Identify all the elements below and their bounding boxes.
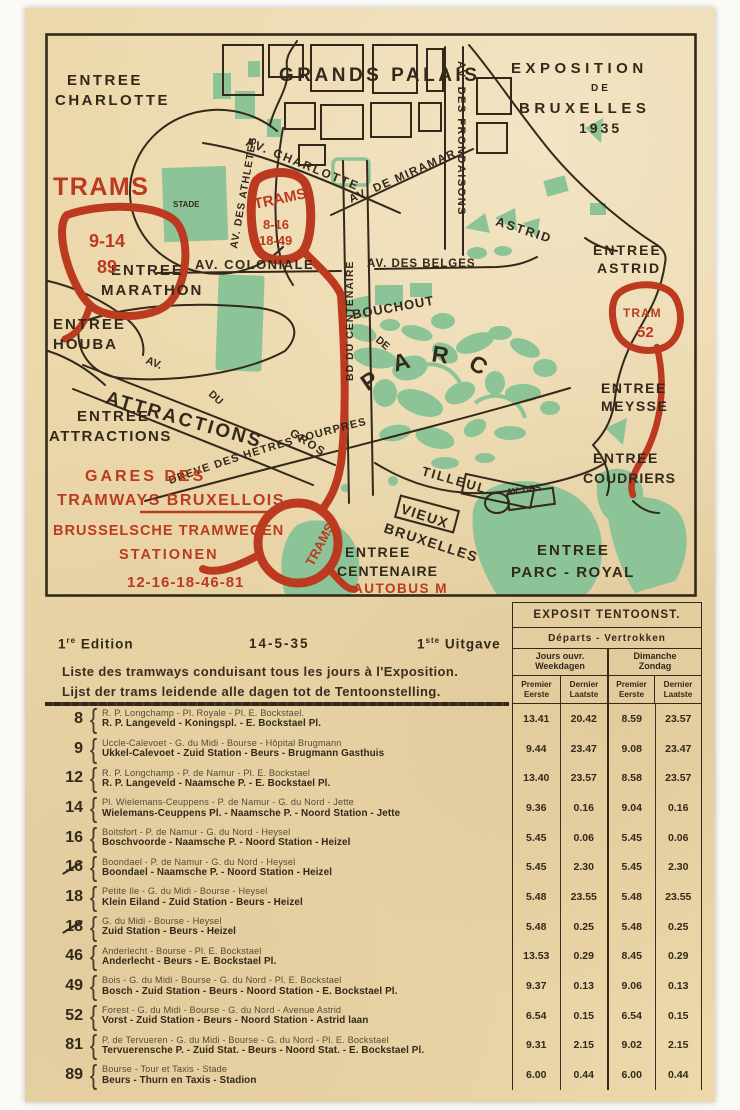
col-sunday: Dimanche Zondag [607,649,701,675]
line-number: 8 [73,710,84,728]
route-brace-icon: { [87,792,100,825]
label-entree-attractions-2: ATTRACTIONS [49,428,172,445]
line-number: 9 [73,740,84,758]
route-brace-icon: { [87,1059,100,1092]
time-weekday-first: 5.45 [512,852,560,882]
route-nl: Klein Eiland - Zuid Station - Beurs - He… [102,897,512,908]
route-nl: Wielemans-Ceuppens Pl. - Naamsche P. - N… [102,808,512,819]
route-brace-icon: { [87,970,100,1003]
route-cell: G. du Midi - Bourse - Heysel Zuid Statio… [100,916,512,937]
route-nl: Ukkel-Calevoet - Zuid Station - Beurs - … [102,748,512,759]
time-weekday-first: 5.45 [512,823,560,853]
time-sunday-last: 23.57 [655,763,703,793]
leaflet-card: ENTREE CHARLOTTE GRANDS PALAIS EXPOSITIO… [25,8,715,1102]
label-entree-astrid: ENTREE [593,242,662,258]
label-entree-coudriers: ENTREE [593,450,659,466]
label-gares-nl-1: BRUSSELSCHE TRAMWEGEN [53,523,284,539]
col-wd-first: Premier Eerste [513,676,560,703]
route-brace-icon: { [87,703,100,736]
route-fr: Boitsfort - P. de Namur - G. du Nord - H… [102,827,512,837]
timetable-row: 52 { Forest - G. du Midi - Bourse - G. d… [45,1001,702,1031]
time-weekday-last: 23.55 [560,882,608,912]
time-weekday-last: 2.30 [560,852,608,882]
time-weekday-last: 0.13 [560,971,608,1001]
time-weekday-first: 5.48 [512,882,560,912]
wd-last-nl: Laatste [570,690,599,699]
line-number-cell: 46 [45,947,87,965]
route-cell: Uccle-Calevoet - G. du Midi - Bourse - H… [100,738,512,759]
label-trams-mid-lines-2: 18-49 [259,233,292,248]
route-brace-icon: { [87,999,100,1032]
label-entree-charlotte: ENTREE [67,72,143,89]
route-cell: R. P. Longchamp - Pl. Royale - Pl. E. Bo… [100,708,512,729]
line-number-cell: 14 [45,799,87,817]
intro-fr: Liste des tramways conduisant tous les j… [62,664,458,679]
route-fr: Bois - G. du Midi - Bourse - G. du Nord … [102,975,512,985]
route-brace-icon: { [87,1029,100,1062]
su-last-nl: Laatste [664,690,693,699]
time-sunday-last: 2.15 [655,1031,703,1061]
route-brace-icon: { [87,910,100,943]
route-cell: Bois - G. du Midi - Bourse - G. du Nord … [100,975,512,996]
time-sunday-last: 0.06 [655,823,703,853]
edition-fr: 1re Edition [58,636,134,652]
line-number-cell: 12 [45,769,87,787]
time-weekday-first: 9.37 [512,971,560,1001]
route-brace-icon: { [87,732,100,765]
label-trams-left-lines: 9-14 [89,231,125,251]
edition-fr-word: Edition [81,637,134,652]
schedule-title: EXPOSIT TENTOONST. [513,603,701,628]
timetable-row: 9 { Uccle-Calevoet - G. du Midi - Bourse… [45,734,702,764]
edition-nl-num: 1 [417,637,426,652]
route-nl: Zuid Station - Beurs - Heizel [102,926,512,937]
col-weekdays-nl: Weekdagen [535,662,585,672]
route-brace-icon: { [87,762,100,795]
route-brace-icon: { [87,851,100,884]
line-number: 18 [64,888,84,906]
time-weekday-first: 9.44 [512,734,560,764]
label-av-miramar: AV. DE MIRAMAR [347,148,458,206]
route-brace-icon: { [87,940,100,973]
route-cell: Petite Ile - G. du Midi - Bourse - Heyse… [100,886,512,907]
route-cell: Anderlecht - Bourse - Pl. E. Bockstael A… [100,946,512,967]
label-entree-marathon: ENTREE [111,262,184,279]
line-number: 18 [64,918,84,936]
time-sunday-first: 8.59 [607,704,655,734]
time-weekday-first: 13.53 [512,942,560,972]
time-sunday-last: 0.29 [655,942,703,972]
col-wd-last: Dernier Laatste [560,676,607,703]
route-nl: Vorst - Zuid Station - Beurs - Noord Sta… [102,1015,512,1026]
route-nl: Beurs - Thurn en Taxis - Stadion [102,1075,512,1086]
time-weekday-last: 0.16 [560,793,608,823]
edition-fr-sup: re [67,636,77,645]
label-entree-astrid-2: ASTRID [597,260,661,276]
timetable-row: 14 { Pl. Wielemans-Ceuppens - P. de Namu… [45,793,702,823]
label-gares-nl-2: STATIONEN [119,547,219,563]
label-entree-houba-2: HOUBA [53,336,118,353]
label-entree-coudriers-2: COUDRIERS [583,470,676,486]
label-gares-fr-1: GARES DES [85,468,206,485]
label-tram52: TRAM [623,306,662,320]
timetable-row: 18 { G. du Midi - Bourse - Heysel Zuid S… [45,912,702,942]
route-brace-icon: { [87,881,100,914]
time-weekday-last: 23.47 [560,734,608,764]
time-weekday-last: 20.42 [560,704,608,734]
time-weekday-last: 23.57 [560,763,608,793]
route-fr: G. du Midi - Bourse - Heysel [102,916,512,926]
line-number-cell: 89 [45,1066,87,1084]
time-sunday-last: 0.13 [655,971,703,1001]
edition-nl: 1ste Uitgave [417,636,501,652]
time-sunday-last: 0.44 [655,1060,703,1090]
wd-last-fr: Dernier [570,680,599,689]
route-fr: Bourse - Tour et Taxis - Stade [102,1064,512,1074]
label-trams-left: TRAMS [53,173,149,201]
line-number-cell: 16 [45,829,87,847]
time-weekday-first: 9.31 [512,1031,560,1061]
route-fr: R. P. Longchamp - Pl. Royale - Pl. E. Bo… [102,708,512,718]
route-fr: P. de Tervueren - G. du Midi - Bourse - … [102,1035,512,1045]
col-su-last: Dernier Laatste [654,676,701,703]
label-entree-attractions: ENTREE [77,408,150,425]
edition-nl-word: Uitgave [445,637,501,652]
time-weekday-last: 0.15 [560,1001,608,1031]
time-sunday-first: 5.48 [607,882,655,912]
time-sunday-first: 6.00 [607,1060,655,1090]
label-trams-mid-lines: 8-16 [263,217,289,232]
timetable-row: 81 { P. de Tervueren - G. du Midi - Bour… [45,1031,702,1061]
line-number-cell: 52 [45,1007,87,1025]
label-entree-meysse-2: MEYSSE [601,398,668,414]
timetable-row: 16 { Boondael - P. de Namur - G. du Nord… [45,852,702,882]
label-autobus: AUTOBUS M [353,581,448,596]
label-tram52-num: 52 [637,324,654,341]
label-bruxelles: BRUXELLES [519,100,650,117]
timetable-row: 49 { Bois - G. du Midi - Bourse - G. du … [45,971,702,1001]
schedule-firstlast-columns: Premier Eerste Dernier Laatste Premier E… [513,676,701,703]
timetable-row: 8 { R. P. Longchamp - Pl. Royale - Pl. E… [45,704,702,734]
route-fr: Forest - G. du Midi - Bourse - G. du Nor… [102,1005,512,1015]
label-entree-meysse: ENTREE [601,380,667,396]
map-canvas: ENTREE CHARLOTTE GRANDS PALAIS EXPOSITIO… [45,33,697,597]
route-fr: Petite Ile - G. du Midi - Bourse - Heyse… [102,886,512,896]
time-sunday-last: 23.57 [655,704,703,734]
label-exposition: EXPOSITION [511,60,648,77]
col-sunday-nl: Zondag [639,662,672,672]
route-cell: Forest - G. du Midi - Bourse - G. du Nor… [100,1005,512,1026]
label-entree-houba: ENTREE [53,316,126,333]
time-sunday-first: 5.45 [607,823,655,853]
edition-fr-num: 1 [58,637,67,652]
label-du-frag: DU [206,388,225,407]
su-first-fr: Premier [616,680,647,689]
time-sunday-last: 2.30 [655,852,703,882]
col-weekdays: Jours ouvr. Weekdagen [513,649,607,675]
time-sunday-first: 9.08 [607,734,655,764]
timetable-row: 89 { Bourse - Tour et Taxis - Stade Beur… [45,1060,702,1090]
label-entree-centenaire-2: CENTENAIRE [337,563,438,579]
time-weekday-first: 9.36 [512,793,560,823]
label-astrid-street: ASTRID [494,215,554,246]
line-number-cell: 9 [45,740,87,758]
route-cell: R. P. Longchamp - P. de Namur - Pl. E. B… [100,768,512,789]
time-sunday-first: 9.02 [607,1031,655,1061]
su-first-nl: Eerste [619,690,644,699]
col-su-first: Premier Eerste [607,676,654,703]
time-weekday-first: 13.41 [512,704,560,734]
route-cell: Boitsfort - P. de Namur - G. du Nord - H… [100,827,512,848]
label-stade: STADE [173,200,200,209]
line-number-cell: 16 [45,858,87,876]
route-cell: P. de Tervueren - G. du Midi - Bourse - … [100,1035,512,1056]
time-sunday-last: 0.16 [655,793,703,823]
schedule-day-columns: Jours ouvr. Weekdagen Dimanche Zondag [513,649,701,676]
label-gares-fr-2: TRAMWAYS BRUXELLOIS [57,492,285,509]
route-nl: Boschvoorde - Naamsche P. - Noord Statio… [102,837,512,848]
expo-map: ENTREE CHARLOTTE GRANDS PALAIS EXPOSITIO… [45,33,697,597]
edition-date: 14-5-35 [249,636,310,651]
line-number: 52 [64,1007,84,1025]
route-fr: Anderlecht - Bourse - Pl. E. Bockstael [102,946,512,956]
time-weekday-first: 13.40 [512,763,560,793]
line-number: 49 [64,977,84,995]
schedule-header-box: EXPOSIT TENTOONST. Départs - Vertrokken … [512,602,702,704]
intro-nl: Lijst der trams leidende alle dagen tot … [62,684,441,699]
route-nl: Anderlecht - Beurs - E. Bockstael Pl. [102,956,512,967]
route-cell: Bourse - Tour et Taxis - Stade Beurs - T… [100,1064,512,1085]
schedule-subtitle: Départs - Vertrokken [513,628,701,649]
route-nl: R. P. Langeveld - Naamsche P. - E. Bocks… [102,778,512,789]
time-weekday-first: 5.48 [512,912,560,942]
time-weekday-last: 0.06 [560,823,608,853]
line-number-cell: 49 [45,977,87,995]
time-sunday-first: 6.54 [607,1001,655,1031]
time-sunday-first: 9.06 [607,971,655,1001]
wd-first-nl: Eerste [524,690,549,699]
label-trams-left-lines-2: 89 [97,257,117,277]
timetable-row: 46 { Anderlecht - Bourse - Pl. E. Bockst… [45,942,702,972]
timetable-row: 12 { R. P. Longchamp - P. de Namur - Pl.… [45,763,702,793]
line-number-cell: 8 [45,710,87,728]
label-entree-marathon-2: MARATHON [101,282,203,299]
label-1935: 1935 [579,120,622,136]
route-nl: Boondael - Naamsche P. - Noord Station -… [102,867,512,878]
line-number: 12 [64,769,84,787]
time-sunday-first: 9.04 [607,793,655,823]
time-sunday-first: 8.45 [607,942,655,972]
line-number: 16 [64,858,84,876]
line-number: 46 [64,947,84,965]
route-fr: R. P. Longchamp - P. de Namur - Pl. E. B… [102,768,512,778]
label-gares-lines: 12-16-18-46-81 [127,574,244,591]
route-cell: Boondael - P. de Namur - G. du Nord - He… [100,857,512,878]
time-weekday-last: 0.25 [560,912,608,942]
label-trams-mid: TRAMS [252,185,308,213]
time-sunday-last: 23.47 [655,734,703,764]
route-nl: Bosch - Zuid Station - Beurs - Noord Sta… [102,986,512,997]
route-fr: Uccle-Calevoet - G. du Midi - Bourse - H… [102,738,512,748]
line-number: 81 [64,1036,84,1054]
line-number: 89 [64,1066,84,1084]
time-weekday-first: 6.54 [512,1001,560,1031]
route-brace-icon: { [87,821,100,854]
timetable-row: 18 { Petite Ile - G. du Midi - Bourse - … [45,882,702,912]
line-number-cell: 81 [45,1036,87,1054]
label-exposition-de: DE [591,83,611,94]
label-av-frag: AV. [144,355,164,372]
time-sunday-last: 23.55 [655,882,703,912]
route-fr: Boondael - P. de Namur - G. du Nord - He… [102,857,512,867]
su-last-fr: Dernier [664,680,693,689]
time-weekday-last: 0.29 [560,942,608,972]
time-sunday-first: 8.58 [607,763,655,793]
time-weekday-last: 2.15 [560,1031,608,1061]
line-number: 16 [64,829,84,847]
time-weekday-last: 0.44 [560,1060,608,1090]
time-sunday-last: 0.15 [655,1001,703,1031]
route-fr: Pl. Wielemans-Ceuppens - P. de Namur - G… [102,797,512,807]
label-av-des-belges: AV. DES BELGES [367,258,476,270]
label-grands-palais: GRANDS PALAIS [279,65,480,86]
time-sunday-first: 5.48 [607,912,655,942]
label-entree-parc-royal-2: PARC - ROYAL [511,564,635,581]
route-nl: Tervuerensche P. - Zuid Stat. - Beurs - … [102,1045,512,1056]
label-av-coloniale: AV. COLONIALE [195,257,314,272]
timetable-row: 16 { Boitsfort - P. de Namur - G. du Nor… [45,823,702,853]
label-av-frondaisons: AV. DES FRONDAISONS [455,61,467,216]
route-cell: Pl. Wielemans-Ceuppens - P. de Namur - G… [100,797,512,818]
edition-nl-sup: ste [426,636,441,645]
line-number-cell: 18 [45,918,87,936]
time-sunday-first: 5.45 [607,852,655,882]
wd-first-fr: Premier [521,680,552,689]
timetable-rows: 8 { R. P. Longchamp - Pl. Royale - Pl. E… [45,704,702,1090]
route-nl: R. P. Langeveld - Koningspl. - E. Bockst… [102,718,512,729]
time-sunday-last: 0.25 [655,912,703,942]
label-entree-charlotte-2: CHARLOTTE [55,92,170,109]
time-weekday-first: 6.00 [512,1060,560,1090]
label-entree-parc-royal: ENTREE [537,542,610,559]
line-number: 14 [64,799,84,817]
label-entree-centenaire: ENTREE [345,544,411,560]
line-number-cell: 18 [45,888,87,906]
